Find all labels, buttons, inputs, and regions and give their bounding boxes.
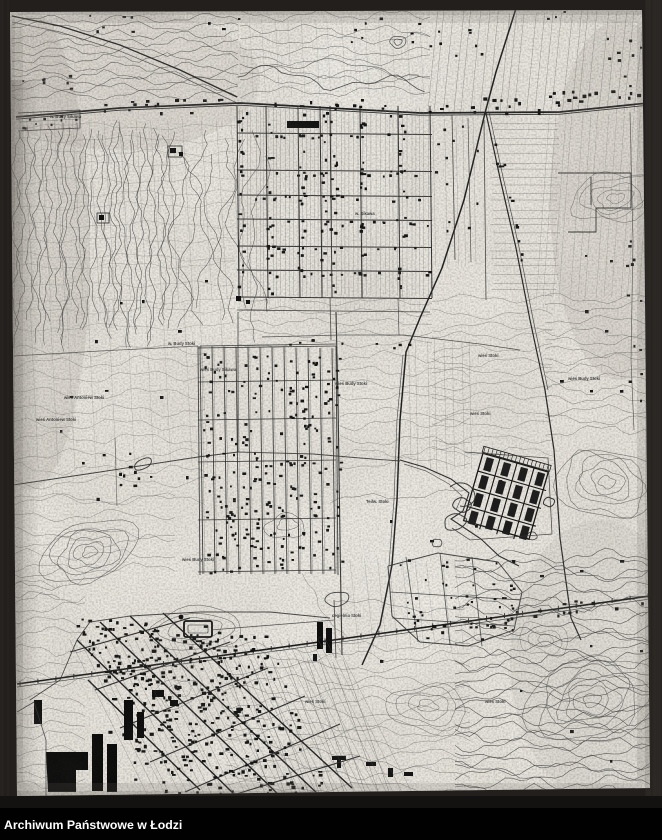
- svg-text:Archiwum Państwowe w Łodzi: Archiwum Państwowe w Łodzi: [4, 818, 182, 832]
